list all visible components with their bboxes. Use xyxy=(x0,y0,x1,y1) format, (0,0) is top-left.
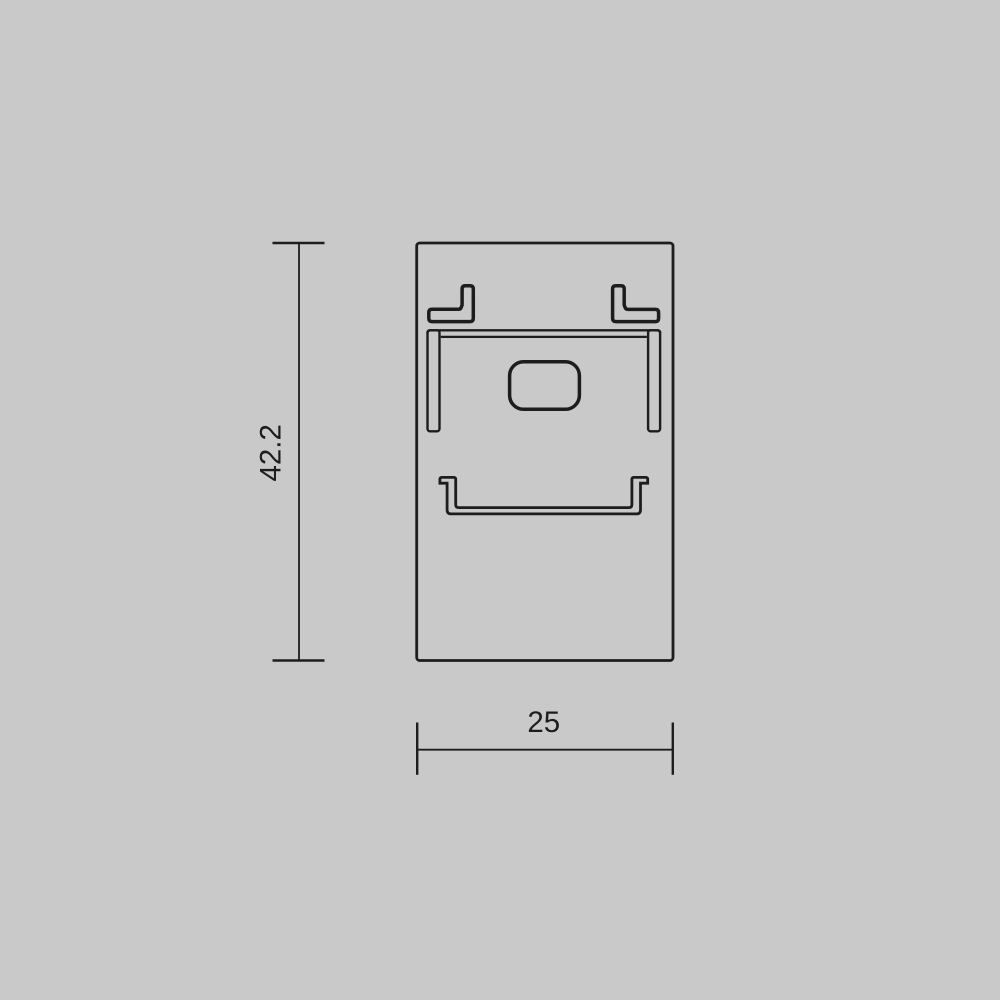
svg-text:42.2: 42.2 xyxy=(255,424,288,481)
svg-text:25: 25 xyxy=(527,706,560,739)
